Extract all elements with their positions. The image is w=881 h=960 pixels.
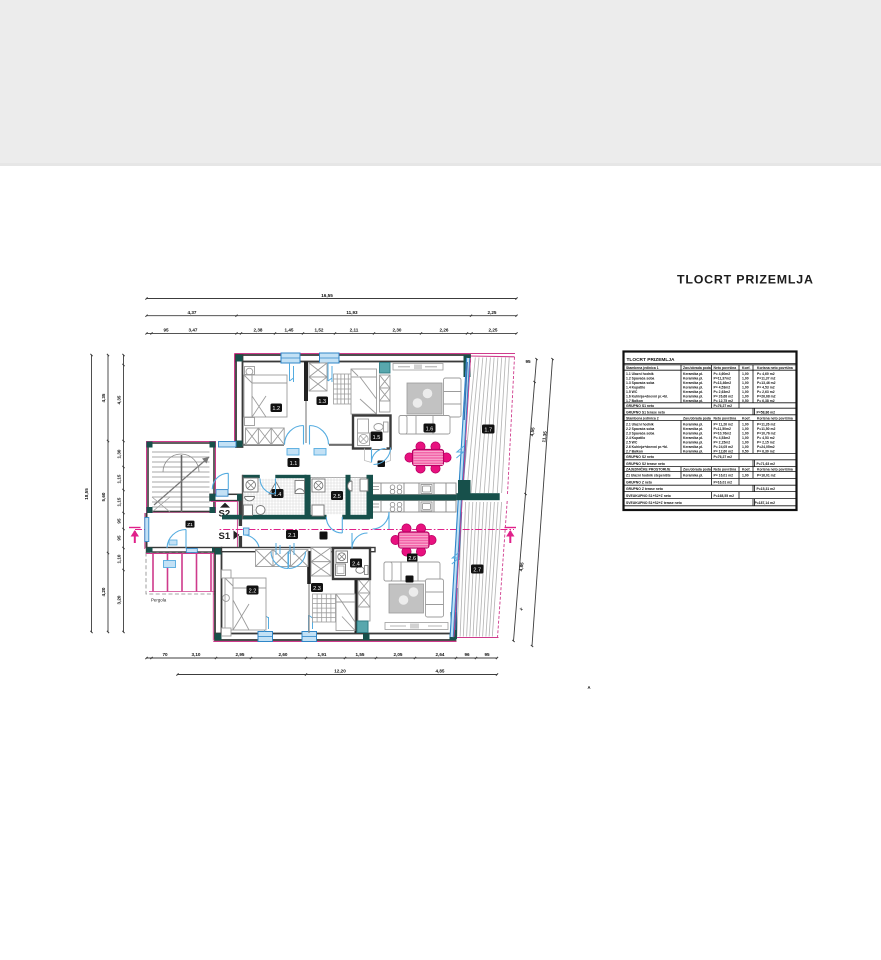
svg-text:1,00: 1,00 [742,372,749,376]
svg-text:Neto površina: Neto površina [714,366,737,370]
svg-text:P=16,01 m2: P=16,01 m2 [714,481,733,485]
svg-text:2.2: 2.2 [249,589,257,595]
svg-text:95: 95 [117,518,122,524]
svg-text:1,00: 1,00 [742,376,749,380]
svg-text:Z1: Z1 [187,522,193,528]
svg-text:P= 12,60 m2: P= 12,60 m2 [714,449,734,453]
svg-text:1.2 Spavaća soba: 1.2 Spavaća soba [626,376,654,380]
svg-text:1,00: 1,00 [742,395,749,399]
svg-text:1,52: 1,52 [315,328,324,333]
svg-text:4,35: 4,35 [117,395,122,404]
svg-text:1,55: 1,55 [356,652,365,657]
svg-text:P= 6,30 m2: P= 6,30 m2 [757,449,775,453]
svg-text:Korisna neto površina: Korisna neto površina [757,467,793,471]
svg-text:2.1: 2.1 [288,533,296,539]
svg-text:Z1 Ulazni hodnik stepenište: Z1 Ulazni hodnik stepenište [626,473,671,477]
svg-text:Stambena jedinica 1: Stambena jedinica 1 [626,366,659,370]
svg-text:1.4 Kupatilo: 1.4 Kupatilo [626,385,645,389]
svg-text:1.3: 1.3 [318,399,326,405]
svg-text:Keramika pl.: Keramika pl. [683,395,703,399]
svg-text:Koef.: Koef. [742,416,751,420]
svg-text:Neto površina: Neto površina [714,416,737,420]
svg-text:2.7: 2.7 [473,568,481,574]
svg-text:P= 11,26 m2: P= 11,26 m2 [714,422,733,426]
svg-text:5,60: 5,60 [101,492,106,501]
svg-text:1,00: 1,00 [742,390,749,394]
svg-text:1,00: 1,00 [742,427,749,431]
svg-text:P=71,63 m2: P=71,63 m2 [757,462,776,466]
svg-text:Keramika pl.: Keramika pl. [683,372,703,376]
svg-text:1,30: 1,30 [117,449,122,458]
svg-text:16,55: 16,55 [321,293,333,298]
svg-text:Stambena jedinica 2: Stambena jedinica 2 [626,416,659,420]
svg-text:4,85: 4,85 [436,668,445,673]
svg-text:1,00: 1,00 [742,436,749,440]
svg-text:P= 4,60m2: P= 4,60m2 [714,372,731,376]
svg-text:Keramika pl.: Keramika pl. [683,449,703,453]
svg-text:P=11,50 m2: P=11,50 m2 [757,427,775,431]
svg-text:Keramika pl.: Keramika pl. [683,376,703,380]
svg-text:A: A [587,685,590,690]
svg-text:S1: S1 [219,531,231,542]
svg-text:2.4 Kupatilo: 2.4 Kupatilo [626,436,645,440]
svg-text:1.1: 1.1 [290,461,298,467]
svg-text:70: 70 [162,652,168,657]
svg-text:SVEUKUPNO S1+S2+Z neto: SVEUKUPNO S1+S2+Z neto [626,494,671,498]
svg-text:Korisna neto površina: Korisna neto površina [757,416,793,420]
svg-text:P=15,31 m2: P=15,31 m2 [757,487,776,491]
svg-text:2,38: 2,38 [254,328,263,333]
svg-text:2.5 WC: 2.5 WC [626,440,638,444]
svg-text:P=11,37m2: P=11,37m2 [714,376,732,380]
svg-text:GRUPNO S2 terase neto: GRUPNO S2 terase neto [626,462,665,466]
svg-text:Keramika pl.: Keramika pl. [683,385,703,389]
svg-text:P= 2,15m2: P= 2,15m2 [714,440,731,444]
svg-text:TLOCRT PRIZEMLJA: TLOCRT PRIZEMLJA [677,273,814,287]
svg-text:P= 4,53 m2: P= 4,53 m2 [757,385,775,389]
svg-text:P= 6,38 m2: P= 6,38 m2 [757,399,775,403]
svg-text:3,10: 3,10 [192,652,201,657]
svg-text:1,00: 1,00 [742,381,749,385]
svg-text:P=187,14 m2: P=187,14 m2 [755,501,776,505]
svg-text:1,15: 1,15 [117,474,122,483]
svg-text:1.7: 1.7 [484,428,492,434]
svg-text:P= 4,60 m2: P= 4,60 m2 [757,372,775,376]
svg-text:SVEUKUPNO S1+S2+Z terase net: SVEUKUPNO S1+S2+Z terase neto [626,501,682,505]
svg-text:P=11,26 m2: P=11,26 m2 [757,422,775,426]
svg-text:4,37: 4,37 [188,310,197,315]
svg-text:P=13,46m2: P=13,46m2 [714,381,732,385]
svg-text:P=168,55 m2: P=168,55 m2 [714,494,735,498]
svg-text:2,25: 2,25 [488,310,497,315]
svg-text:4,35: 4,35 [101,393,106,402]
svg-text:P=58,86 m2: P=58,86 m2 [757,411,776,415]
svg-text:Keramika pl.: Keramika pl. [683,390,703,394]
svg-text:1,00: 1,00 [742,385,749,389]
svg-text:Keramika pl.: Keramika pl. [683,431,703,435]
svg-text:2.6: 2.6 [408,556,416,562]
svg-text:Koef.: Koef. [742,366,751,370]
svg-text:3,47: 3,47 [189,328,198,333]
svg-text:Keramika pl.: Keramika pl. [683,436,703,440]
svg-text:2.2 Spavaća soba: 2.2 Spavaća soba [626,427,654,431]
svg-text:1.4: 1.4 [274,492,282,498]
svg-text:2,26: 2,26 [440,328,449,333]
svg-text:P= 12,75 m2: P= 12,75 m2 [714,399,734,403]
svg-text:2,05: 2,05 [394,652,403,657]
svg-text:P= 4,53m2: P= 4,53m2 [714,436,731,440]
svg-text:Keramika pl.: Keramika pl. [683,427,703,431]
svg-text:1,00: 1,00 [742,422,749,426]
svg-text:2.4: 2.4 [352,562,360,568]
svg-text:4,20: 4,20 [101,587,106,596]
svg-text:2.5: 2.5 [333,494,341,500]
svg-text:GRUPNO Z terase neto: GRUPNO Z terase neto [626,487,663,491]
svg-text:P= 4,53m2: P= 4,53m2 [714,385,731,389]
svg-text:TLOCRT PRIZEMLJA: TLOCRT PRIZEMLJA [627,357,676,363]
svg-text:P=76,27 m2: P=76,27 m2 [714,455,733,459]
svg-text:P=24,05m2: P=24,05m2 [757,445,775,449]
svg-text:1.5 WC: 1.5 WC [626,390,638,394]
svg-text:GRUPNO Z neto: GRUPNO Z neto [626,481,652,485]
svg-text:Keramika pl.: Keramika pl. [683,445,703,449]
svg-text:0,50: 0,50 [742,399,749,403]
svg-text:96: 96 [464,652,470,657]
svg-text:P= 2,63 m2: P= 2,63 m2 [757,390,775,394]
svg-text:Neto površina: Neto površina [714,467,737,471]
svg-text:Zav./obrada poda: Zav./obrada poda [683,467,711,471]
svg-text:P= 24,05 m2: P= 24,05 m2 [714,445,734,449]
svg-text:GRUPNO S2 neto: GRUPNO S2 neto [626,455,654,459]
svg-text:Pergola: Pergola [151,598,167,603]
svg-text:95: 95 [525,359,531,364]
svg-text:2.1 Ulazni hodnik: 2.1 Ulazni hodnik [626,422,654,426]
svg-text:Korisna neto površina: Korisna neto površina [757,366,793,370]
svg-text:1,00: 1,00 [742,431,749,435]
svg-text:Keramika pl.: Keramika pl. [683,440,703,444]
svg-text:95: 95 [163,328,169,333]
svg-text:P= 2,15 m2: P= 2,15 m2 [757,440,775,444]
svg-text:1,15: 1,15 [117,497,122,506]
svg-text:Zav./obrada poda: Zav./obrada poda [683,366,711,370]
svg-text:P=26,68 m2: P=26,68 m2 [757,395,776,399]
svg-text:18,55: 18,55 [84,488,89,500]
svg-text:1,91: 1,91 [318,652,327,657]
svg-text:Keramika pl.: Keramika pl. [683,399,703,403]
svg-text:1.7 Balkon: 1.7 Balkon [626,399,643,403]
svg-text:P= 26,68 m2: P= 26,68 m2 [714,395,734,399]
svg-text:2,30: 2,30 [393,328,402,333]
svg-text:P=13,46 m2: P=13,46 m2 [757,381,776,385]
svg-text:P=16,01 m2: P=16,01 m2 [757,473,776,477]
svg-text:1,00: 1,00 [742,473,749,477]
svg-text:P=11,37 m2: P=11,37 m2 [757,376,775,380]
svg-text:1.1 Ulazni hodnik: 1.1 Ulazni hodnik [626,372,654,376]
svg-text:P=76,27 m2: P=76,27 m2 [714,404,733,408]
svg-text:GRUPNO S1 neto: GRUPNO S1 neto [626,404,654,408]
svg-text:95: 95 [117,535,122,541]
svg-text:2,60: 2,60 [279,652,288,657]
svg-text:P=10,76m2: P=10,76m2 [714,431,732,435]
svg-text:P= 16,01 m2: P= 16,01 m2 [714,473,734,477]
svg-text:2.3 Spavaća soba: 2.3 Spavaća soba [626,431,654,435]
svg-text:2.3: 2.3 [313,586,321,592]
svg-text:Koef.: Koef. [742,467,751,471]
svg-text:2,11: 2,11 [350,328,359,333]
svg-text:1,45: 1,45 [285,328,294,333]
svg-text:Zav./obrada poda: Zav./obrada poda [683,416,711,420]
svg-text:2.6 Kuhinja+dnevni pr.+bl.: 2.6 Kuhinja+dnevni pr.+bl. [626,445,668,449]
svg-text:1.2: 1.2 [272,406,280,412]
svg-text:Keramika pl.: Keramika pl. [683,381,703,385]
svg-text:3,20: 3,20 [117,595,122,604]
svg-text:Keramika pl.: Keramika pl. [683,422,703,426]
svg-text:1.6 Kuhinja+dnevni pr.+bl.: 1.6 Kuhinja+dnevni pr.+bl. [626,395,668,399]
svg-text:2,95: 2,95 [236,652,245,657]
svg-text:1,00: 1,00 [742,445,749,449]
svg-text:1.3 Spavaća soba: 1.3 Spavaća soba [626,381,654,385]
svg-text:1.5: 1.5 [373,435,381,441]
svg-text:GRUPNO S1 terase neto: GRUPNO S1 terase neto [626,411,665,415]
svg-text:95: 95 [484,652,490,657]
svg-text:1,10: 1,10 [117,554,122,563]
svg-text:1,00: 1,00 [742,440,749,444]
svg-text:12,20: 12,20 [334,668,346,673]
svg-text:0,50: 0,50 [742,449,749,453]
svg-text:ZAJEDNIČKE PROSTORIJE: ZAJEDNIČKE PROSTORIJE [626,466,671,471]
svg-text:11,93: 11,93 [346,310,358,315]
svg-text:P=10,76 m2: P=10,76 m2 [757,431,776,435]
svg-text:1.6: 1.6 [426,427,434,433]
svg-text:P= 4,53 m2: P= 4,53 m2 [757,436,775,440]
svg-text:2,25: 2,25 [489,328,498,333]
svg-text:P=11,50m2: P=11,50m2 [714,427,732,431]
svg-text:Keramika pl.: Keramika pl. [683,473,703,477]
svg-text:2,64: 2,64 [436,652,445,657]
svg-text:P= 2,63m2: P= 2,63m2 [714,390,731,394]
svg-text:2.7 Balkon: 2.7 Balkon [626,449,643,453]
